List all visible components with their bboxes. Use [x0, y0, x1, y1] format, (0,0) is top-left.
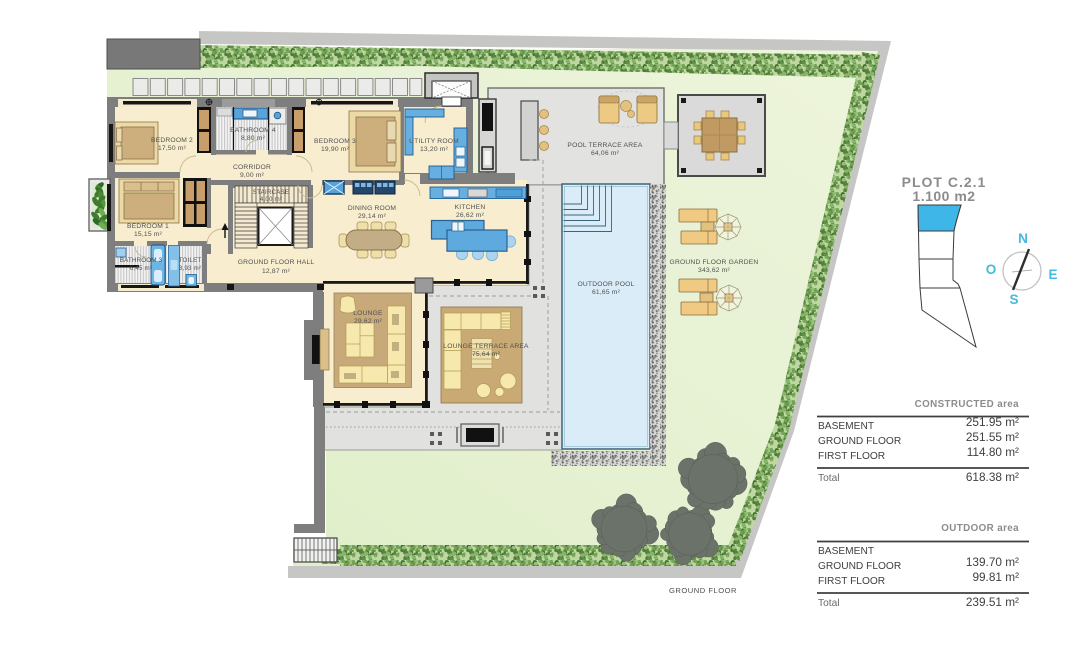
svg-text:3,93 m²: 3,93 m²: [179, 265, 201, 272]
svg-text:GROUND FLOOR HALL: GROUND FLOOR HALL: [238, 259, 315, 266]
svg-text:BASEMENT: BASEMENT: [818, 421, 874, 432]
svg-text:618.38 m²: 618.38 m²: [966, 470, 1019, 484]
svg-text:CONSTRUCTED area: CONSTRUCTED area: [915, 399, 1020, 410]
svg-text:29,14 m²: 29,14 m²: [358, 213, 387, 220]
svg-text:BEDROOM 1: BEDROOM 1: [127, 223, 169, 230]
svg-text:BASEMENT: BASEMENT: [818, 546, 874, 557]
svg-text:17,50 m²: 17,50 m²: [158, 145, 187, 152]
svg-text:19,90 m²: 19,90 m²: [321, 146, 350, 153]
svg-text:6,45 m²: 6,45 m²: [130, 265, 152, 272]
svg-text:STAIRCASE: STAIRCASE: [253, 189, 289, 196]
svg-text:DINING ROOM: DINING ROOM: [348, 205, 396, 212]
svg-text:LOUNGE: LOUNGE: [353, 310, 383, 317]
svg-text:S: S: [1009, 292, 1018, 307]
svg-text:N: N: [1018, 231, 1028, 246]
svg-text:114.80 m²: 114.80 m²: [967, 445, 1019, 459]
svg-text:FIRST FLOOR: FIRST FLOOR: [818, 576, 885, 587]
svg-text:251.95 m²: 251.95 m²: [966, 415, 1019, 429]
svg-text:OUTDOOR POOL: OUTDOOR POOL: [577, 281, 634, 288]
svg-text:BATHROOM 4: BATHROOM 4: [230, 127, 276, 134]
svg-text:64,06 m²: 64,06 m²: [591, 150, 620, 157]
svg-text:BATHROOM 3: BATHROOM 3: [120, 257, 163, 264]
svg-text:139.70 m²: 139.70 m²: [966, 555, 1019, 569]
svg-text:GROUND FLOOR GARDEN: GROUND FLOOR GARDEN: [670, 259, 759, 266]
svg-text:239.51 m²: 239.51 m²: [966, 595, 1019, 609]
svg-text:29,62 m²: 29,62 m²: [354, 318, 383, 325]
svg-text:GROUND FLOOR: GROUND FLOOR: [669, 586, 737, 595]
svg-text:99.81 m²: 99.81 m²: [972, 570, 1019, 584]
svg-text:9,00 m²: 9,00 m²: [240, 172, 265, 179]
svg-text:343,62 m²: 343,62 m²: [698, 267, 730, 274]
svg-text:26,62 m²: 26,62 m²: [456, 212, 485, 219]
svg-text:POOL TERRACE AREA: POOL TERRACE AREA: [567, 142, 642, 149]
svg-text:15,15 m²: 15,15 m²: [134, 231, 163, 238]
svg-text:4,00 m²: 4,00 m²: [260, 196, 282, 203]
svg-text:Total: Total: [818, 598, 840, 609]
svg-text:LOUNGE TERRACE AREA: LOUNGE TERRACE AREA: [443, 343, 529, 350]
svg-text:BEDROOM 2: BEDROOM 2: [151, 137, 193, 144]
svg-text:OUTDOOR area: OUTDOOR area: [941, 523, 1019, 534]
svg-text:1.100 m2: 1.100 m2: [912, 188, 975, 204]
svg-text:GROUND FLOOR: GROUND FLOOR: [818, 561, 901, 572]
svg-text:61,65 m²: 61,65 m²: [592, 289, 621, 296]
svg-text:CORRIDOR: CORRIDOR: [233, 164, 271, 171]
svg-text:251.55 m²: 251.55 m²: [966, 430, 1019, 444]
svg-text:GROUND FLOOR: GROUND FLOOR: [818, 436, 901, 447]
svg-text:FIRST FLOOR: FIRST FLOOR: [818, 451, 885, 462]
svg-text:BEDROOM 3: BEDROOM 3: [314, 138, 356, 145]
svg-text:13,20 m²: 13,20 m²: [420, 146, 449, 153]
svg-text:KITCHEN: KITCHEN: [455, 204, 486, 211]
svg-text:UTILITY ROOM: UTILITY ROOM: [409, 138, 459, 145]
svg-text:Total: Total: [818, 473, 840, 484]
svg-text:8,80 m²: 8,80 m²: [241, 135, 266, 142]
svg-text:O: O: [986, 262, 997, 277]
svg-text:75,64 m²: 75,64 m²: [472, 351, 501, 358]
svg-text:12,87 m²: 12,87 m²: [262, 268, 291, 275]
svg-text:TOILET: TOILET: [179, 257, 202, 264]
svg-text:E: E: [1048, 267, 1057, 282]
